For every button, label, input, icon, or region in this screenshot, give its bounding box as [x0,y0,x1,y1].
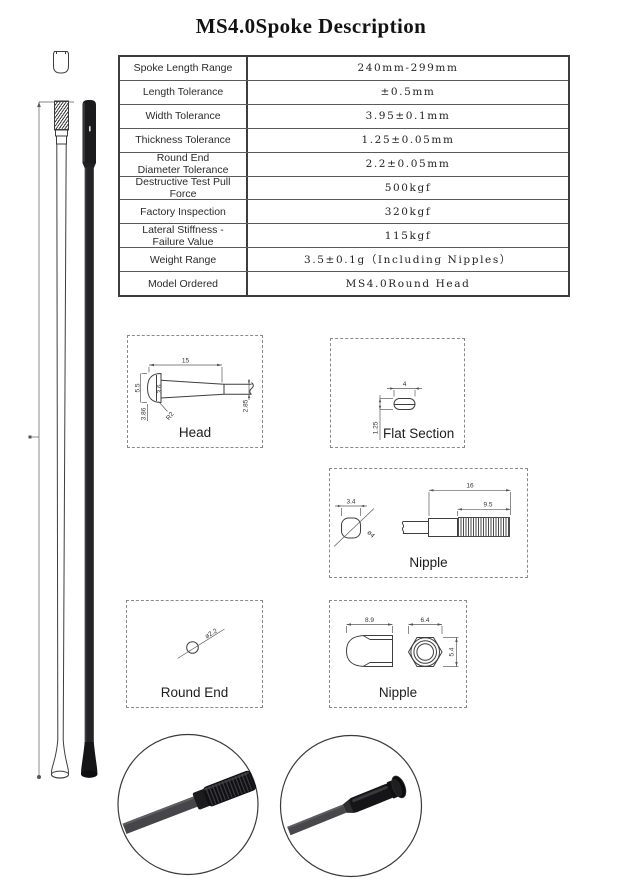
length-dimension-line [29,102,75,779]
spec-label: Length Tolerance [120,81,248,104]
spec-value: 2.2±0.05mm [248,153,568,176]
spoke-thread-hatch [54,101,69,130]
table-row: Lateral Stiffness - Failure Value 115kgf [120,223,568,247]
nipple-diameter-dim: ø4 [365,529,376,540]
spec-label: Factory Inspection [120,200,248,223]
table-row: Destructive Test Pull Force 500kgf [120,176,568,200]
spec-value: 500kgf [248,177,568,200]
page-title: MS4.0Spoke Description [0,14,622,39]
round-end-box: ø2.2 Round End [126,600,263,708]
nipple-flat-dim: 3.4 [346,498,355,505]
flat-section-box-label: Flat Section [383,426,454,441]
table-row: Length Tolerance ±0.5mm [120,80,568,104]
spec-value: ±0.5mm [248,81,568,104]
table-row: Thickness Tolerance 1.25±0.05mm [120,128,568,152]
nipple-thread-length-dim: 9.5 [483,502,492,509]
nipple-side-box-label: Nipple [330,555,527,570]
full-spoke-drawing [20,45,110,790]
nipple-side-box: ø4 3.4 16 9.5 [329,468,528,578]
spec-label: Spoke Length Range [120,57,248,80]
flat-section-box: 4 1.25 Flat Section [330,338,465,448]
head-length-dim: 15 [182,358,190,365]
table-row: Width Tolerance 3.95±0.1mm [120,104,568,128]
spec-label: Model Ordered [120,272,248,295]
spec-label: Weight Range [120,248,248,271]
spec-value: 115kgf [248,224,568,247]
spec-value: 3.95±0.1mm [248,105,568,128]
spec-label: Width Tolerance [120,105,248,128]
flat-thickness-dim: 1.25 [373,421,380,434]
spec-label: Thickness Tolerance [120,129,248,152]
head-width-dim: 3.86 [141,407,148,420]
table-row: Factory Inspection 320kgf [120,199,568,223]
nipple-front-width-dim: 6.4 [420,617,429,624]
round-end-diameter-dim: ø2.2 [204,627,219,640]
head-height-dim: 5.5 [135,383,142,392]
photo-head-end [272,730,430,880]
spec-value: 320kgf [248,200,568,223]
spec-label: Round End Diameter Tolerance [120,153,248,176]
spec-label: Destructive Test Pull Force [120,177,248,200]
spec-value: 1.25±0.05mm [248,129,568,152]
head-neck-dim: 3.6 [157,384,164,393]
table-row: Round End Diameter Tolerance 2.2±0.05mm [120,152,568,176]
spec-sheet-page: MS4.0Spoke Description Spoke Length Rang… [0,0,622,884]
table-row: Weight Range 3.5±0.1g（Including Nipples） [120,247,568,271]
spec-table: Spoke Length Range 240mm-299mm Length To… [118,55,570,297]
table-row: Model Ordered MS4.0Round Head [120,271,568,295]
nipple-front-box-label: Nipple [330,685,466,700]
spoke-outline-drawing [52,101,69,778]
nipple-front-height-dim: 5.4 [449,647,456,656]
spoke-product-render [81,100,97,778]
table-row: Spoke Length Range 240mm-299mm [120,57,568,80]
spec-value: MS4.0Round Head [248,272,568,295]
nipple-front-length-dim: 8.9 [365,617,374,624]
spec-value: 3.5±0.1g（Including Nipples） [248,248,568,271]
nipple-front-box: 8.9 6.4 5.4 Nipple [329,600,467,708]
head-box-label: Head [128,425,262,440]
nipple-thread-hatch [458,517,510,537]
round-end-box-label: Round End [127,685,262,700]
nipple-outline-drawing [54,52,69,74]
photo-thread-end [110,729,266,879]
head-shaft-dim: 2.85 [243,399,250,412]
nipple-total-length-dim: 16 [466,483,474,490]
spec-label: Lateral Stiffness - Failure Value [120,224,248,247]
flat-width-dim: 4 [403,381,407,388]
head-radius-dim: R2 [165,411,176,422]
spec-value: 240mm-299mm [248,57,568,80]
head-detail-box: 15 5.5 3.6 3.86 R2 2.85 Head [127,335,263,448]
